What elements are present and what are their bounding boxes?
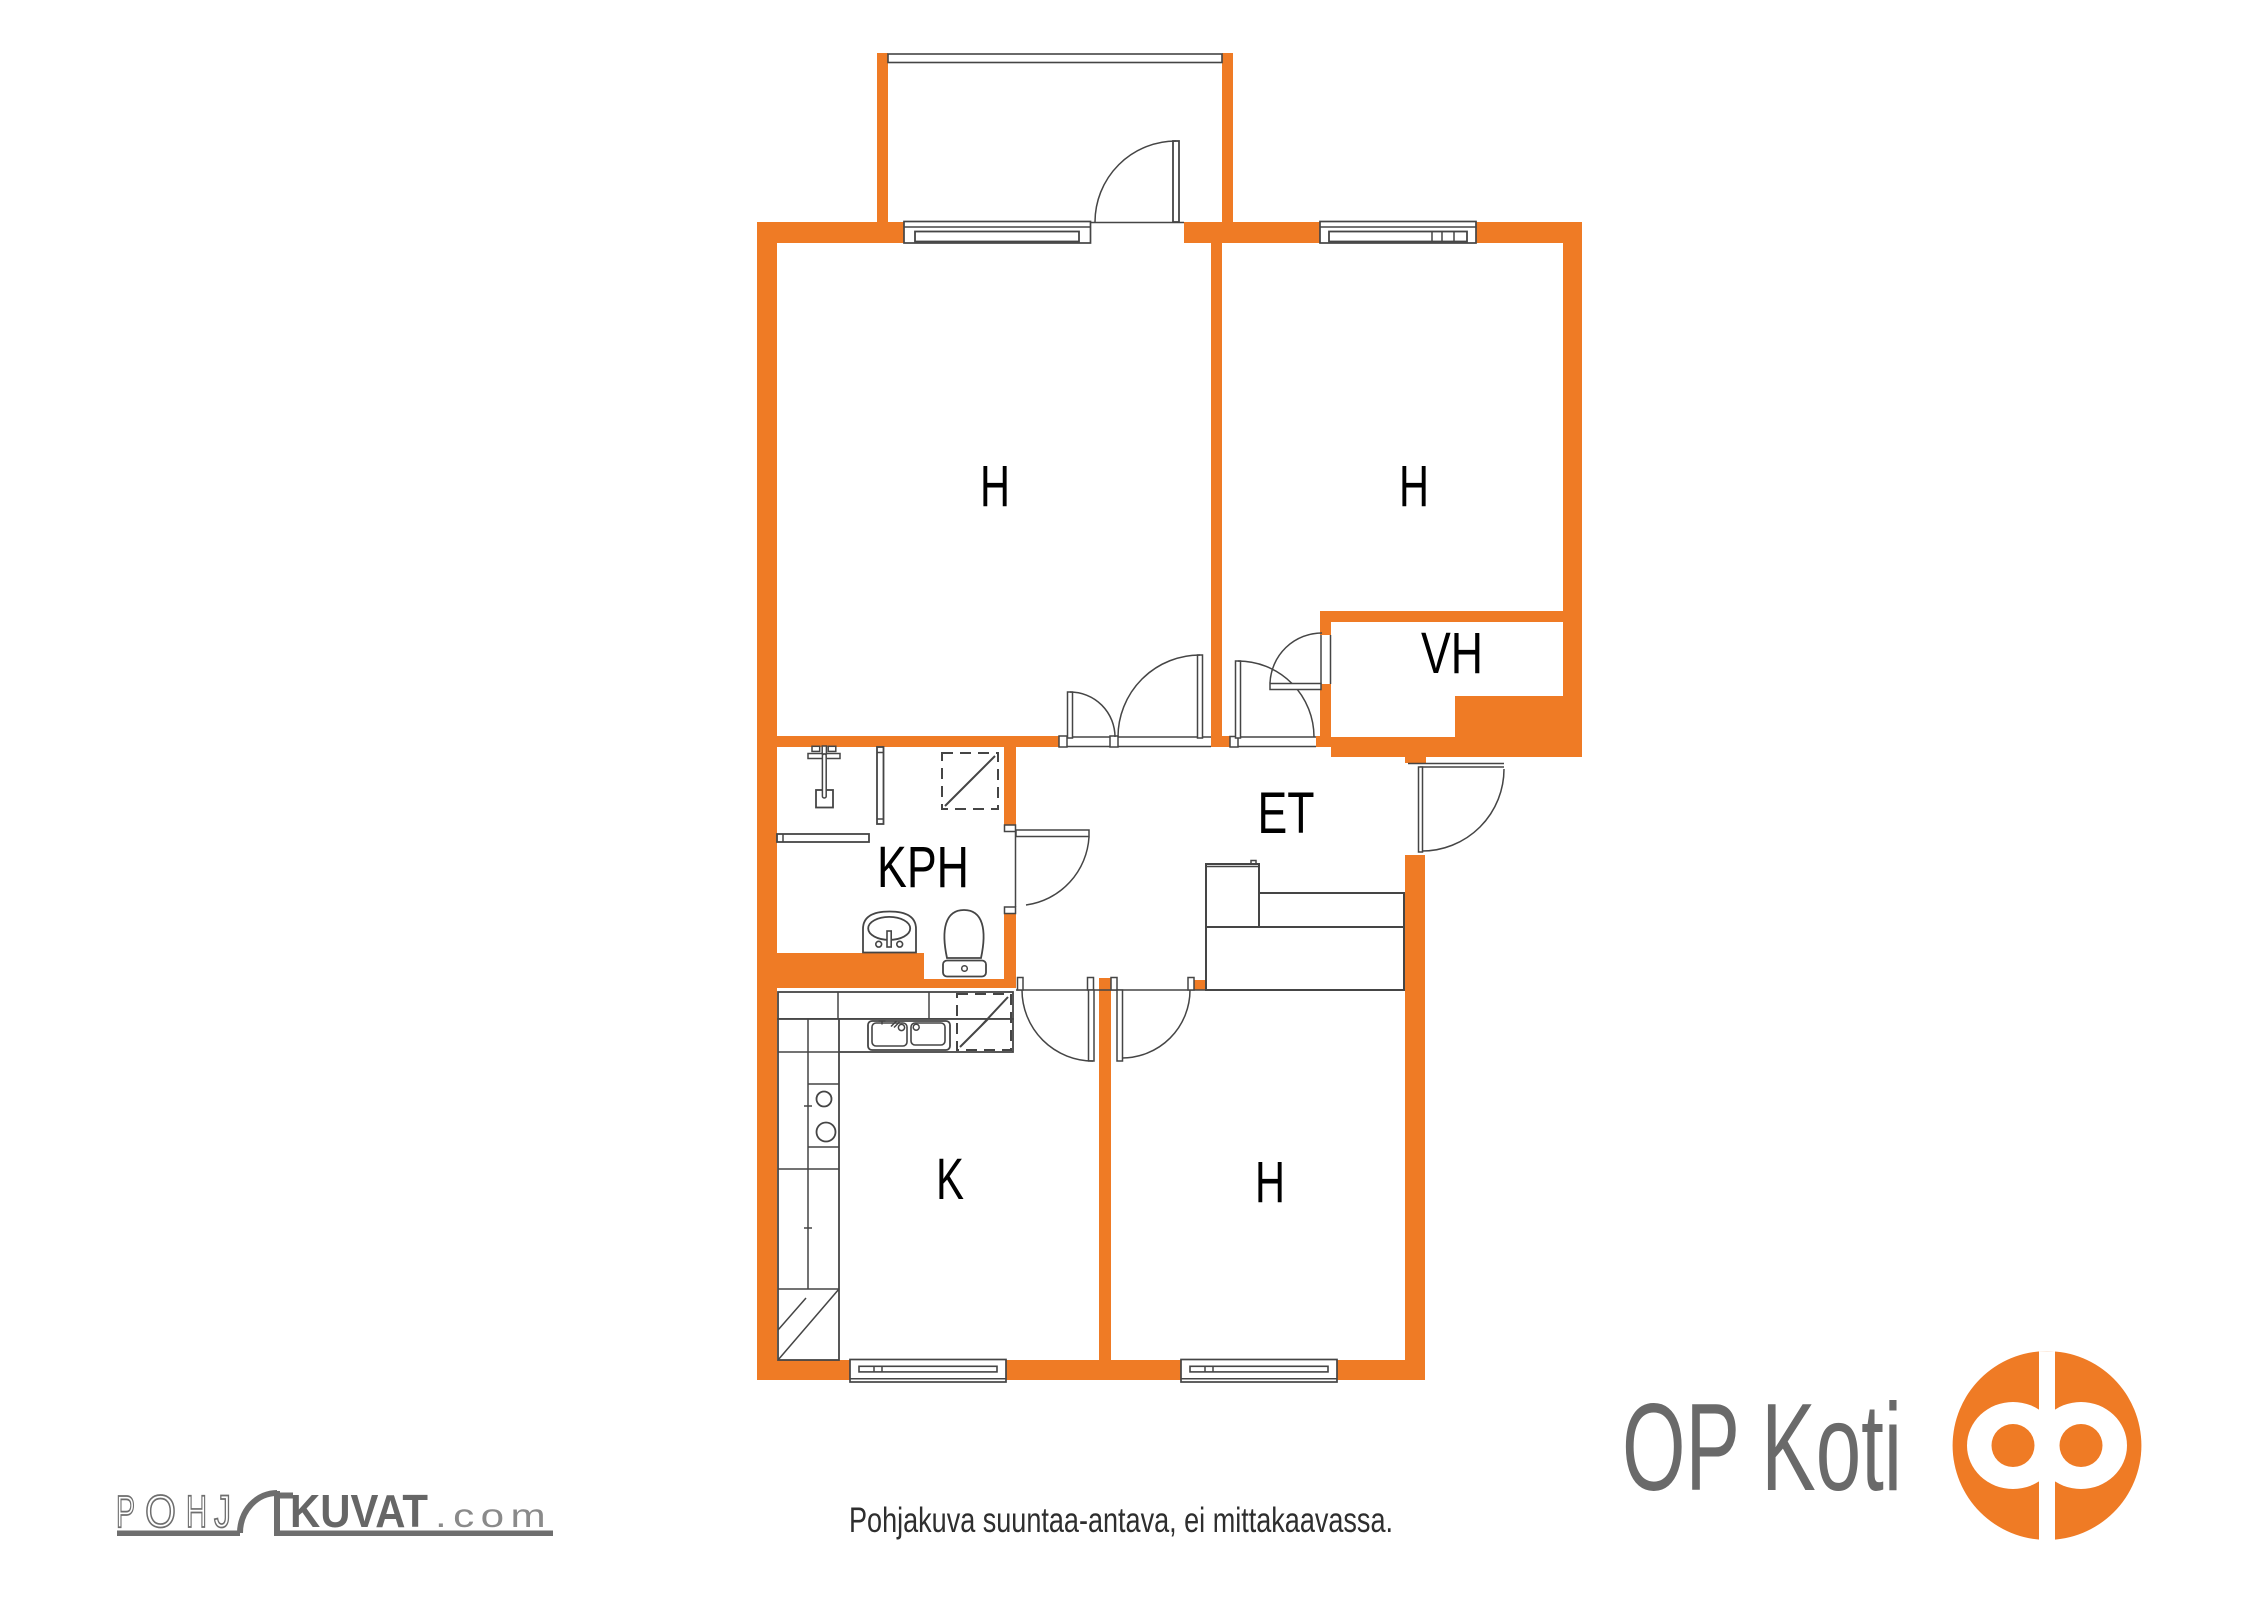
svg-text:O: O [145,1486,176,1537]
svg-text:H: H [980,454,1010,519]
svg-text:H: H [1255,1150,1285,1215]
svg-text:KUVAT: KUVAT [290,1485,428,1537]
svg-text:H: H [186,1486,207,1537]
svg-text:P: P [116,1486,135,1537]
svg-text:H: H [1399,454,1429,519]
svg-text:K: K [936,1147,964,1212]
svg-text:.com: .com [435,1497,552,1534]
svg-text:VH: VH [1421,621,1483,686]
svg-text:Pohjakuva suuntaa-antava, ei m: Pohjakuva suuntaa-antava, ei mittakaavas… [849,1500,1393,1540]
svg-text:KPH: KPH [877,835,969,900]
svg-text:J: J [214,1486,231,1537]
svg-text:OP Koti: OP Koti [1622,1379,1902,1517]
svg-text:ET: ET [1258,781,1315,846]
